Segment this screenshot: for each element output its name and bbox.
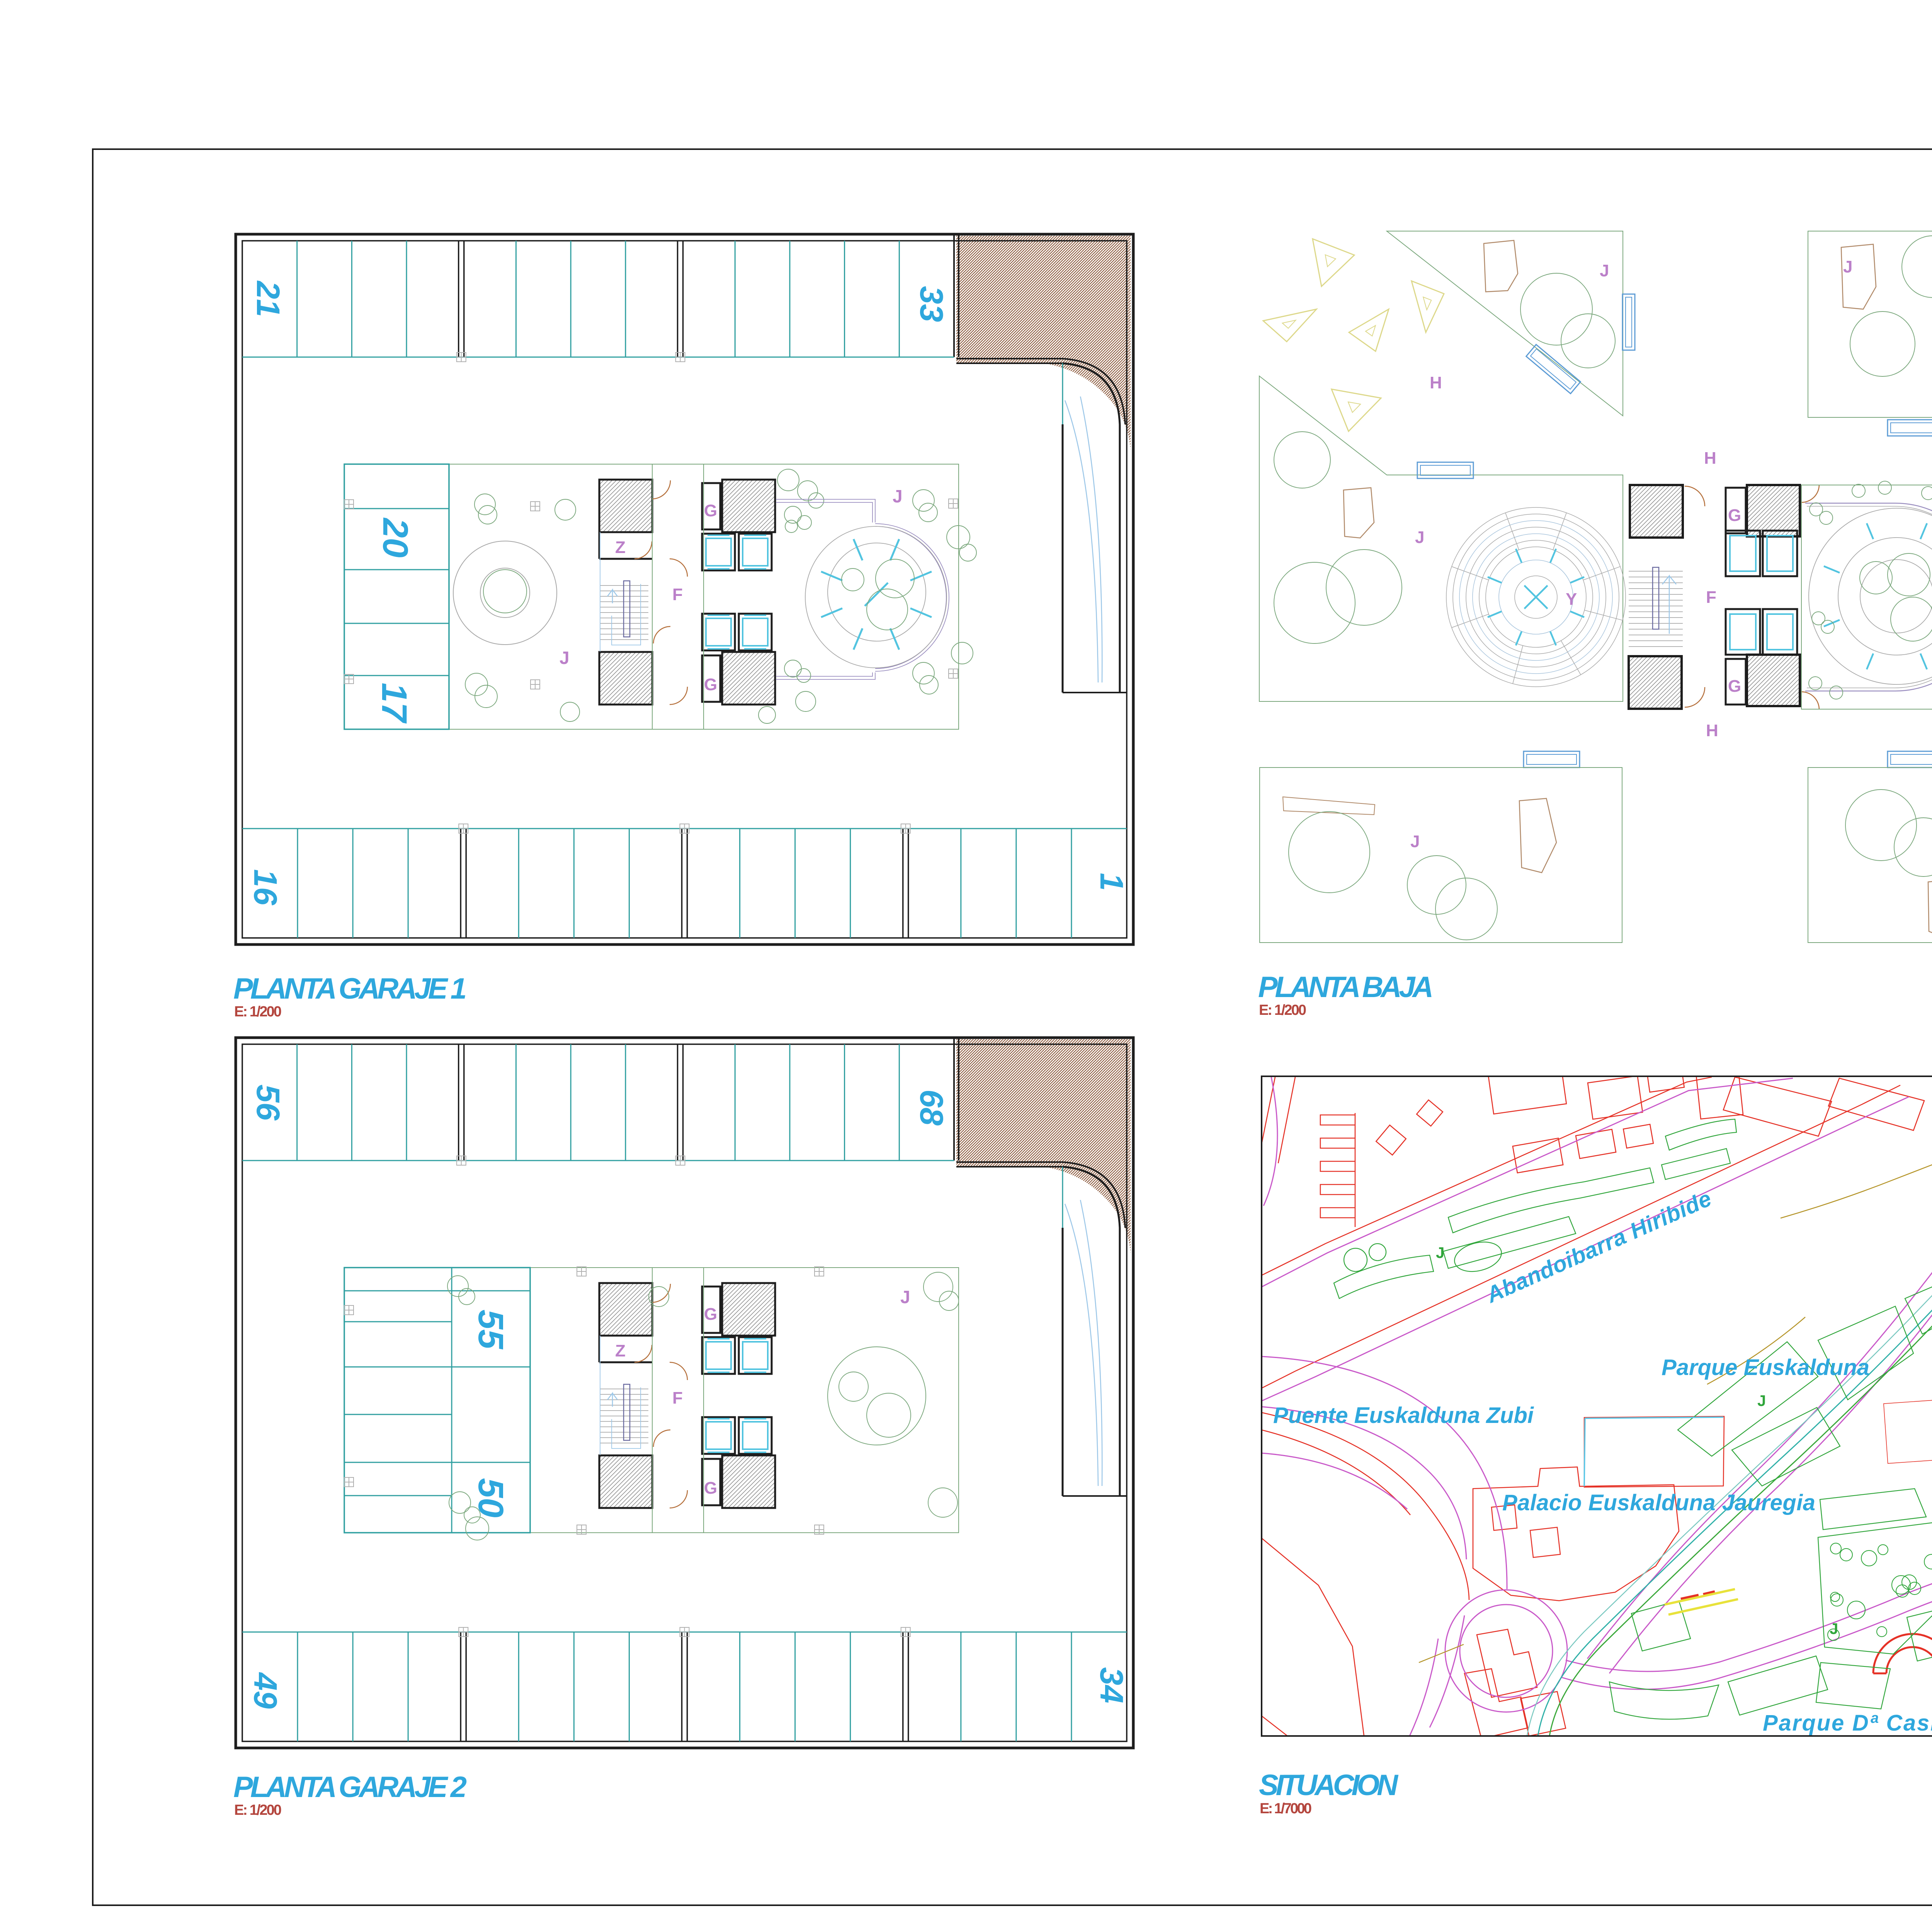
svg-text:H: H	[1706, 721, 1718, 740]
svg-text:G: G	[704, 1479, 717, 1498]
svg-text:E: 1/200: E: 1/200	[234, 1004, 282, 1020]
svg-text:Parque Dª Casilda: Parque Dª Casilda	[1763, 1710, 1932, 1736]
svg-text:34: 34	[1094, 1667, 1130, 1703]
svg-text:J: J	[1410, 832, 1420, 851]
svg-text:16: 16	[247, 869, 284, 906]
svg-text:J: J	[900, 1287, 910, 1307]
svg-text:F: F	[672, 1389, 683, 1407]
svg-text:J: J	[1757, 1392, 1766, 1409]
svg-text:H: H	[1704, 449, 1716, 468]
svg-text:J: J	[1415, 528, 1424, 547]
svg-text:E: 1/200: E: 1/200	[1259, 1002, 1306, 1018]
svg-text:68: 68	[913, 1089, 950, 1126]
svg-text:F: F	[672, 585, 683, 604]
svg-text:PLANTA GARAJE 1: PLANTA GARAJE 1	[233, 972, 467, 1005]
svg-text:SITUACION: SITUACION	[1259, 1769, 1399, 1802]
svg-text:55: 55	[471, 1309, 510, 1350]
svg-text:Puente Euskalduna Zubi: Puente Euskalduna Zubi	[1273, 1403, 1534, 1428]
svg-text:Z: Z	[615, 1341, 626, 1360]
svg-text:H: H	[1430, 373, 1442, 392]
svg-text:J: J	[560, 648, 570, 668]
svg-text:17: 17	[374, 682, 414, 723]
svg-text:Parque Euskalduna: Parque Euskalduna	[1662, 1355, 1869, 1380]
svg-text:E: 1/200: E: 1/200	[234, 1802, 282, 1818]
svg-text:E: 1/7000: E: 1/7000	[1260, 1801, 1312, 1817]
svg-text:Z: Z	[615, 538, 626, 557]
svg-text:G: G	[1728, 677, 1741, 696]
svg-text:50: 50	[471, 1478, 510, 1517]
svg-text:20: 20	[376, 517, 415, 557]
svg-text:PLANTA BAJA: PLANTA BAJA	[1258, 971, 1434, 1004]
svg-text:J: J	[893, 486, 903, 506]
svg-text:Y: Y	[1566, 590, 1577, 609]
svg-text:21: 21	[250, 280, 286, 317]
svg-text:Palacio Euskalduna Jauregia: Palacio Euskalduna Jauregia	[1502, 1490, 1815, 1515]
svg-text:33: 33	[913, 286, 950, 322]
svg-text:G: G	[704, 1305, 717, 1324]
svg-text:G: G	[704, 675, 717, 694]
svg-text:J: J	[1830, 1620, 1838, 1637]
svg-text:PLANTA GARAJE 2: PLANTA GARAJE 2	[233, 1771, 467, 1804]
svg-text:G: G	[1728, 506, 1741, 525]
svg-text:J: J	[1436, 1244, 1444, 1261]
svg-text:J: J	[1843, 257, 1852, 276]
svg-text:G: G	[704, 501, 717, 520]
svg-text:1: 1	[1094, 873, 1130, 891]
svg-text:56: 56	[250, 1084, 286, 1121]
svg-text:F: F	[1706, 588, 1716, 607]
svg-text:49: 49	[247, 1672, 284, 1709]
svg-text:J: J	[1600, 261, 1609, 280]
